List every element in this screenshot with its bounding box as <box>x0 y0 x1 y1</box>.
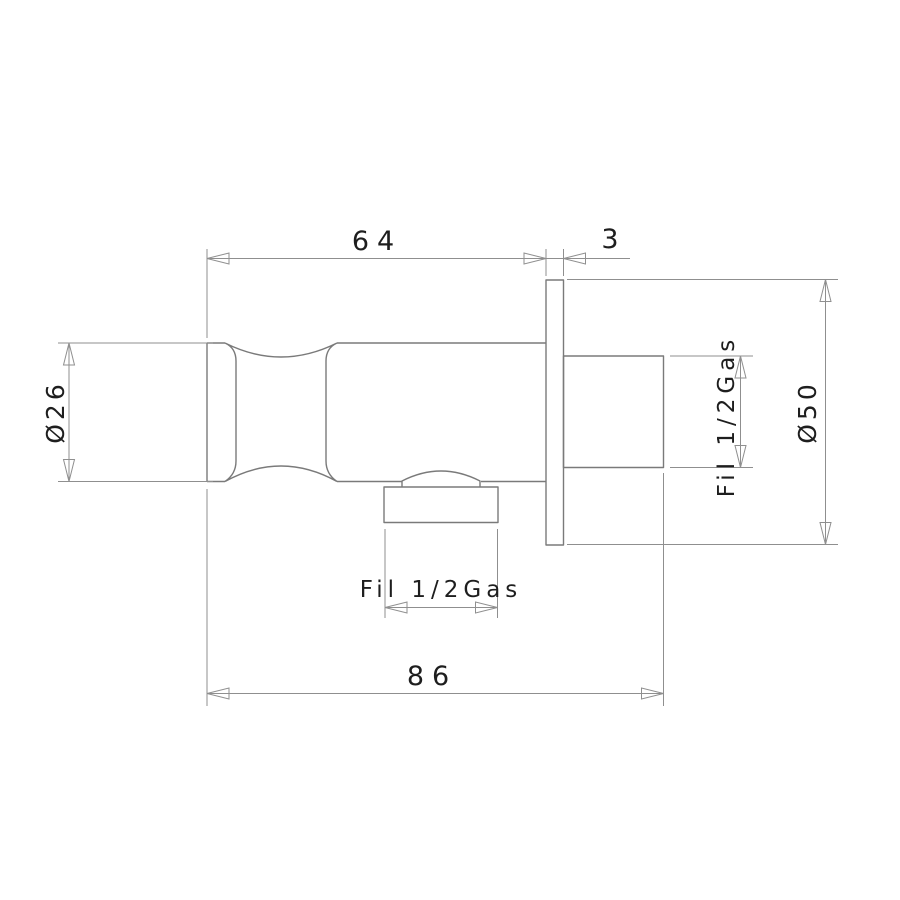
technical-drawing-page: 64 3 Ø26 86 Fil 1/2Gas <box>0 0 900 900</box>
grip-ring <box>225 343 337 482</box>
outlet-dome <box>402 471 480 487</box>
dimension-inlet-thread: Fil 1/2Gas <box>670 335 753 498</box>
dim-label-flange-thickness: 3 <box>601 224 618 255</box>
outlet-nut <box>384 487 498 523</box>
body-outline <box>207 343 546 482</box>
drawing-svg: 64 3 Ø26 86 Fil 1/2Gas <box>0 0 900 900</box>
inlet-connector <box>564 356 664 468</box>
wall-flange <box>546 280 564 545</box>
dim-label-inlet-thread: Fil 1/2Gas <box>714 335 740 498</box>
part-geometry <box>207 280 664 545</box>
dimension-body-diameter: Ø26 <box>41 343 213 482</box>
dim-label-body-diameter: Ø26 <box>41 380 70 444</box>
dim-label-body-length: 64 <box>352 226 402 257</box>
dimension-flange-diameter: Ø50 <box>567 280 838 545</box>
dimension-outlet-thread: Fil 1/2Gas <box>360 529 523 618</box>
dim-label-overall-length: 86 <box>407 661 457 692</box>
dim-label-outlet-thread: Fil 1/2Gas <box>360 577 523 603</box>
dim-label-flange-diameter: Ø50 <box>793 380 822 444</box>
dimension-body-length: 64 <box>207 226 630 338</box>
